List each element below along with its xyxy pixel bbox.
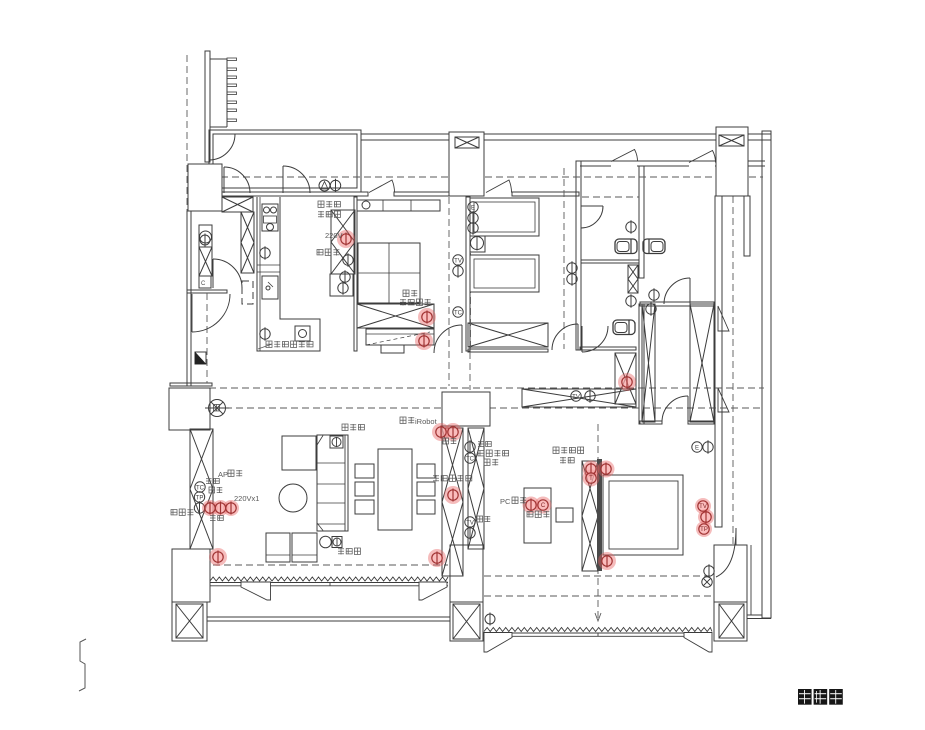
svg-text:TP: TP xyxy=(700,527,708,533)
svg-text:iRobot: iRobot xyxy=(415,417,438,426)
svg-text:TC: TC xyxy=(466,456,475,462)
svg-text:C: C xyxy=(541,503,546,509)
svg-text:220V: 220V xyxy=(325,231,343,240)
svg-text:E: E xyxy=(695,445,699,451)
svg-text:T: T xyxy=(589,476,593,482)
svg-text:TV: TV xyxy=(572,394,580,400)
svg-text:AP: AP xyxy=(218,470,228,479)
svg-text:TC: TC xyxy=(454,310,463,316)
svg-text:TV: TV xyxy=(466,520,474,526)
svg-text:220Vx1: 220Vx1 xyxy=(234,494,259,503)
svg-text:TC: TC xyxy=(196,485,205,491)
svg-text:TV: TV xyxy=(454,258,462,264)
svg-text:E: E xyxy=(471,205,475,211)
svg-text:TV: TV xyxy=(699,504,707,510)
svg-text:TP: TP xyxy=(196,495,204,501)
svg-text:C: C xyxy=(201,281,206,287)
svg-text:PC: PC xyxy=(500,497,511,506)
